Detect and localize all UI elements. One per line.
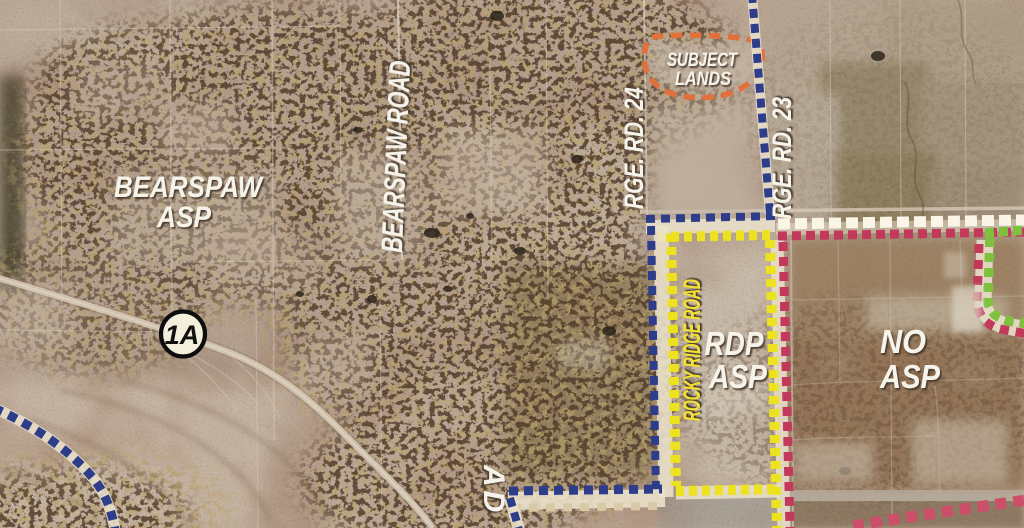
svg-text:BEARSPAW: BEARSPAW (114, 171, 264, 204)
svg-text:ROCKY RIDGE ROAD: ROCKY RIDGE ROAD (679, 279, 706, 421)
svg-text:1A: 1A (165, 320, 200, 350)
svg-text:ASP: ASP (156, 201, 212, 234)
svg-text:LANDS: LANDS (675, 69, 731, 90)
svg-text:ASP: ASP (708, 358, 768, 395)
svg-text:NO: NO (880, 323, 926, 360)
svg-text:RGE. RD. 24: RGE. RD. 24 (619, 87, 649, 209)
svg-text:AD: AD (477, 464, 510, 516)
svg-text:RGE. RD. 23: RGE. RD. 23 (767, 97, 797, 219)
svg-text:SUBJECT: SUBJECT (667, 50, 738, 71)
svg-text:ASP: ASP (879, 358, 941, 395)
svg-text:RDP: RDP (705, 325, 765, 362)
